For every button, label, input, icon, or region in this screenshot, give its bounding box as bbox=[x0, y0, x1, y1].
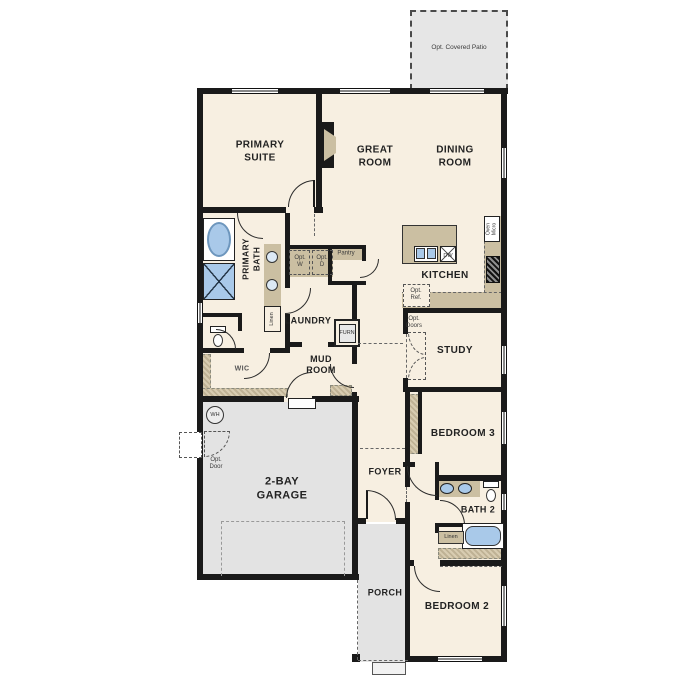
garage-door-outline bbox=[221, 521, 345, 576]
threshold-kitchen-hall bbox=[358, 343, 403, 344]
door-primary-suite-leaf bbox=[313, 180, 315, 207]
porch-step bbox=[372, 662, 406, 675]
window-great-room bbox=[340, 88, 390, 94]
bathtub-primary-basin bbox=[207, 222, 231, 257]
wall-suite-bottom-b bbox=[314, 207, 323, 213]
room-label-primary-suite: PRIMARY SUITE bbox=[236, 140, 285, 165]
door-front-entry-leaf bbox=[366, 491, 368, 519]
wall-left bbox=[197, 88, 203, 580]
window-study bbox=[501, 346, 507, 374]
room-label-pantry: Pantry bbox=[337, 250, 354, 257]
room-label-patio: Opt. Covered Patio bbox=[431, 44, 486, 52]
room-label-garage: 2-BAY GARAGE bbox=[257, 475, 308, 503]
floor-plan: Opt. Covered Patio PRIMARY SUITE GREAT R… bbox=[0, 0, 687, 687]
hall-study-floor bbox=[355, 313, 504, 397]
wall-wc-right bbox=[238, 313, 242, 331]
wall-foyer-right-b bbox=[405, 502, 410, 662]
room-label-kitchen: KITCHEN bbox=[421, 270, 468, 283]
label-water-heater: WH bbox=[210, 412, 219, 418]
island-sink-bowl-1 bbox=[416, 248, 425, 259]
label-oven-micro: Oven Micro bbox=[487, 223, 498, 235]
wall-pantry-top bbox=[328, 245, 366, 249]
toilet-bath2-bowl bbox=[486, 489, 496, 502]
window-dining-top bbox=[430, 88, 484, 94]
bathtub2-basin bbox=[465, 526, 501, 546]
label-opt-doors: Opt. Doors bbox=[406, 316, 422, 330]
garage-step bbox=[288, 398, 316, 409]
room-label-bedroom3: BEDROOM 3 bbox=[431, 428, 495, 441]
room-label-wic: WIC bbox=[235, 366, 250, 375]
wall-foyer-bottom-b bbox=[396, 518, 408, 524]
bath2-sink-2 bbox=[458, 483, 472, 494]
room-label-bath2: BATH 2 bbox=[461, 504, 495, 515]
wall-study-top bbox=[403, 308, 501, 313]
room-label-study: STUDY bbox=[437, 345, 473, 358]
opening-suite-hall bbox=[314, 214, 315, 236]
label-opt-door-garage: Opt. Door bbox=[209, 457, 222, 471]
island-sink-bowl-2 bbox=[427, 248, 436, 259]
room-label-laundry: LAUNDRY bbox=[285, 315, 331, 326]
wall-pantry-bottom bbox=[328, 281, 366, 285]
opt-garage-door-box bbox=[179, 432, 202, 458]
window-bedroom3 bbox=[501, 412, 507, 444]
bed2-closet bbox=[438, 548, 502, 559]
wall-wic-top-b bbox=[270, 348, 290, 353]
window-primary-suite bbox=[232, 88, 278, 94]
wall-foyer-bottom-a bbox=[358, 518, 366, 524]
porch-edge-left bbox=[357, 580, 358, 660]
room-label-primary-bath: PRIMARY BATH bbox=[240, 238, 261, 280]
opt-study-door-line bbox=[406, 334, 407, 378]
threshold-foyer bbox=[360, 448, 405, 449]
wall-garage-top-a bbox=[197, 396, 284, 402]
bed2-closet-line bbox=[440, 566, 502, 567]
opening-foyer-hall bbox=[406, 487, 407, 502]
label-dishwasher: DW bbox=[443, 253, 452, 259]
label-linen-bath2: Linen bbox=[444, 534, 457, 540]
room-label-great-room: GREAT ROOM bbox=[357, 145, 393, 170]
wall-bed2-top-a bbox=[405, 560, 414, 566]
room-label-dining-room: DINING ROOM bbox=[436, 145, 473, 170]
window-dining-right bbox=[501, 148, 507, 178]
wall-laundry-mud-a bbox=[285, 342, 302, 347]
toilet-bath2-tank bbox=[483, 481, 499, 488]
label-furnace: FURN bbox=[339, 330, 354, 336]
wall-laundry-top bbox=[285, 245, 332, 249]
room-label-mud-room: MUD ROOM bbox=[306, 354, 336, 377]
wall-wc-top bbox=[200, 313, 242, 317]
bath-sink-1 bbox=[266, 251, 278, 263]
label-opt-washer: Opt. W bbox=[294, 255, 305, 269]
label-opt-dryer: Opt. D bbox=[316, 255, 327, 269]
wall-bed3-closet-right bbox=[418, 392, 422, 454]
room-label-porch: PORCH bbox=[368, 587, 403, 598]
room-label-bedroom2: BEDROOM 2 bbox=[425, 601, 489, 614]
range-cooktop bbox=[486, 256, 500, 283]
window-bedroom2-bottom bbox=[438, 656, 482, 662]
window-bedroom2-right bbox=[501, 586, 507, 626]
wall-garage-right bbox=[352, 402, 358, 580]
window-bath2 bbox=[501, 494, 507, 510]
bath-sink-2 bbox=[266, 279, 278, 291]
window-bath-left bbox=[197, 303, 203, 323]
porch-edge-bottom bbox=[358, 660, 408, 661]
label-opt-ref: Opt. Ref. bbox=[410, 288, 421, 302]
label-linen-bath-hall: Linen bbox=[269, 312, 275, 325]
shower-primary bbox=[203, 263, 235, 300]
bath2-sink-1 bbox=[440, 483, 454, 494]
room-label-foyer: FOYER bbox=[368, 466, 401, 477]
